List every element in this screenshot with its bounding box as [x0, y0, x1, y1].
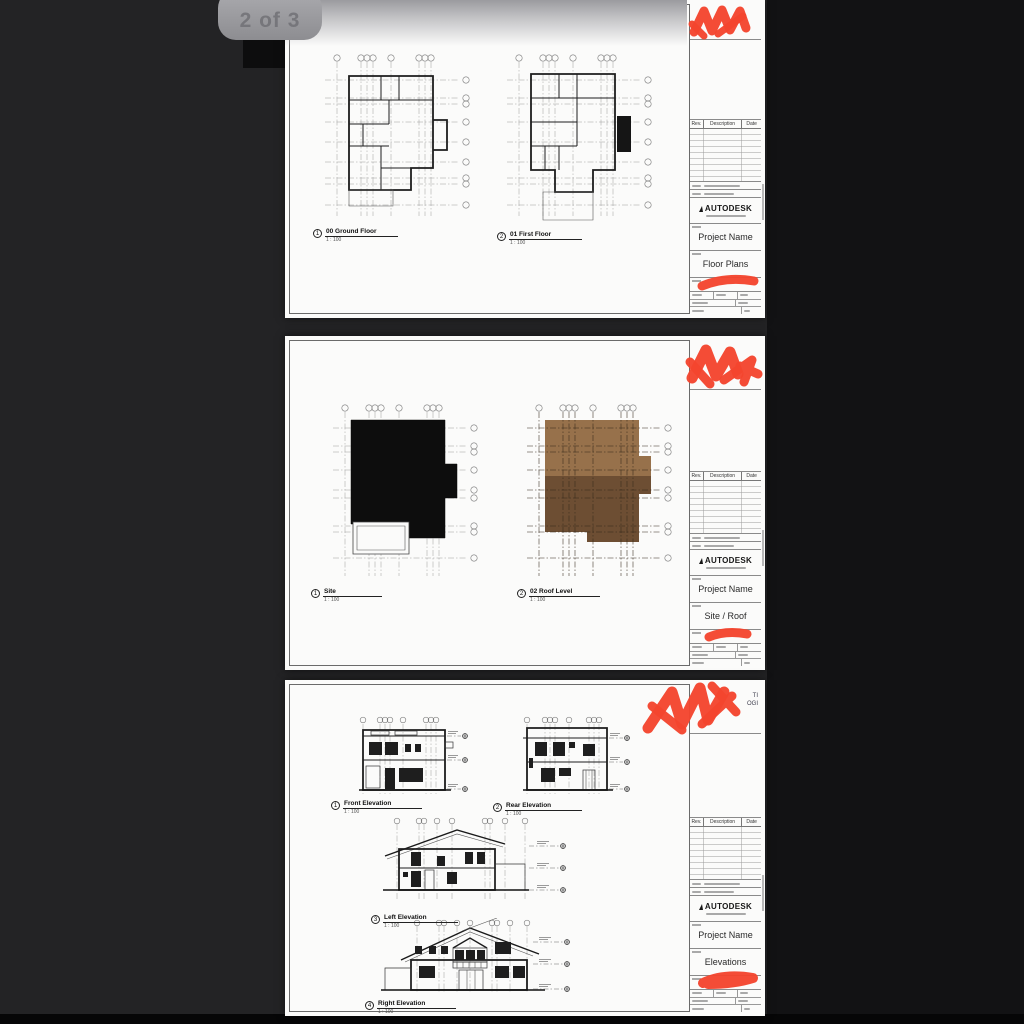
title-block: TI OGI Rev. Description Date — [689, 684, 761, 1012]
consultant-row — [690, 542, 761, 550]
red-scribble-icon — [682, 338, 766, 392]
revision-table: Rev. Description Date — [690, 818, 761, 880]
drawing-label: 1 Front Elevation 1 : 100 — [331, 800, 422, 815]
roof-line — [385, 830, 505, 856]
author-box — [690, 630, 761, 644]
plot-stamp — [762, 875, 764, 911]
autodesk-brand-box: AUTODESK — [690, 550, 761, 576]
rev-col: Rev. — [690, 472, 704, 480]
drawing-number-badge: 3 — [371, 915, 380, 924]
blank-box — [690, 390, 761, 472]
title-block: Rev. Description Date AUTODESK Project N… — [689, 4, 761, 314]
date-col: Date — [742, 120, 761, 128]
author-box — [690, 278, 761, 292]
drawing-scale: 1 : 100 — [343, 809, 422, 815]
autodesk-brand-box: AUTODESK — [690, 896, 761, 922]
drawing-scale: 1 : 100 — [377, 1009, 456, 1015]
drawing-title: Left Elevation — [383, 914, 458, 923]
left-elevation-drawing — [377, 816, 582, 911]
autodesk-brand-box: AUTODESK — [690, 198, 761, 224]
date-col: Date — [742, 472, 761, 480]
title-block: Rev. Description Date AUTODESK Project N… — [689, 340, 761, 666]
revision-header: Rev. Description Date — [690, 120, 761, 129]
site-plan-drawing — [323, 400, 483, 585]
photo-top-shade — [285, 0, 687, 46]
description-col: Description — [704, 818, 742, 826]
project-name-box: Project Name — [690, 224, 761, 251]
brand-tagline-bar — [706, 567, 746, 569]
revision-header: Rev. Description Date — [690, 818, 761, 827]
autodesk-wordmark: AUTODESK — [705, 556, 752, 565]
project-name: Project Name — [690, 576, 761, 602]
project-name: Project Name — [690, 922, 761, 948]
autodesk-logo-icon — [699, 206, 703, 212]
logo-box: TI OGI — [690, 684, 761, 734]
drawing-label: 1 Site 1 : 100 — [311, 588, 382, 603]
rev-col: Rev. — [690, 818, 704, 826]
project-name-box: Project Name — [690, 922, 761, 949]
project-name: Project Name — [690, 224, 761, 250]
field-label-bar — [692, 632, 701, 634]
grid-bubbles — [394, 818, 528, 824]
section-marker — [617, 116, 631, 152]
title-block-fields — [690, 990, 761, 1012]
drawing-label: 2 02 Roof Level 1 : 100 — [517, 588, 600, 603]
drawing-title: Site — [323, 588, 382, 597]
grid-bubbles — [524, 717, 602, 723]
logo-box — [690, 4, 761, 40]
drawing-scale: 1 : 100 — [529, 597, 600, 603]
drawing-number-badge: 1 — [311, 589, 320, 598]
blank-box — [690, 734, 761, 818]
red-scribble-icon — [696, 968, 760, 990]
consultant-row — [690, 888, 761, 896]
side-volume — [495, 864, 525, 890]
drawing-scale: 1 : 100 — [505, 811, 582, 817]
brand-tagline-bar — [706, 913, 746, 915]
autodesk-wordmark: AUTODESK — [705, 204, 752, 213]
drawing-number-badge: 2 — [517, 589, 526, 598]
sheet-floor-plans[interactable]: 1 00 Ground Floor 1 : 100 2 01 First Flo… — [285, 0, 765, 318]
autodesk-wordmark: AUTODESK — [705, 902, 752, 911]
first-floor-plan-drawing — [497, 50, 657, 225]
drawing-number-badge: 1 — [313, 229, 322, 238]
plot-stamp — [762, 530, 764, 566]
consultant-row — [690, 534, 761, 542]
consultant-row — [690, 880, 761, 888]
grid-bubbles — [360, 717, 439, 723]
project-name-box: Project Name — [690, 576, 761, 603]
drawing-number-badge: 4 — [365, 1001, 374, 1010]
drawing-scale: 1 : 100 — [325, 237, 398, 243]
roof-plan-drawing — [517, 400, 677, 585]
lower-roof-outline — [543, 192, 593, 220]
revision-rows — [690, 481, 761, 533]
drawing-scale: 1 : 100 — [509, 240, 582, 246]
sheet-site-roof[interactable]: 1 Site 1 : 100 2 02 Roof Level 1 : 1 — [285, 336, 765, 670]
exterior-walls — [349, 76, 447, 190]
title-block-fields — [690, 644, 761, 666]
revision-header: Rev. Description Date — [690, 472, 761, 481]
drawing-title: Front Elevation — [343, 800, 422, 809]
revision-table: Rev. Description Date — [690, 472, 761, 534]
photo-viewer: 1 00 Ground Floor 1 : 100 2 01 First Flo… — [0, 0, 1024, 1024]
blank-box — [690, 40, 761, 120]
drawing-scale: 1 : 100 — [383, 923, 458, 929]
consultant-row — [690, 190, 761, 198]
sheet-elevations[interactable]: 1 Front Elevation 1 : 100 — [285, 680, 765, 1016]
photo-dark-notch — [243, 38, 287, 68]
porch-outline — [349, 190, 393, 206]
brand-tagline-bar — [706, 215, 746, 217]
background-right — [767, 0, 1024, 1024]
author-box — [690, 976, 761, 990]
ground-floor-plan-drawing — [315, 50, 475, 225]
drawing-title: Right Elevation — [377, 1000, 456, 1009]
red-scribble-icon — [702, 626, 754, 644]
revision-rows — [690, 129, 761, 181]
rev-col: Rev. — [690, 120, 704, 128]
upper-roof — [545, 420, 639, 476]
red-scribble-icon — [696, 272, 760, 292]
drawing-number-badge: 2 — [497, 232, 506, 241]
date-col: Date — [742, 818, 761, 826]
lower-roof — [545, 476, 639, 532]
grid-lines — [325, 62, 459, 216]
red-scribble-icon — [688, 4, 758, 40]
autodesk-logo-icon — [699, 558, 703, 564]
porch-outline — [353, 522, 409, 554]
garage-volume — [385, 968, 411, 990]
title-block-fields — [690, 292, 761, 314]
drawing-title: Rear Elevation — [505, 802, 582, 811]
plot-stamp — [762, 184, 764, 220]
building-mass — [351, 420, 457, 538]
drawing-title: 00 Ground Floor — [325, 228, 398, 237]
grid-lines — [527, 724, 599, 794]
drawing-number-badge: 2 — [493, 803, 502, 812]
description-col: Description — [704, 120, 742, 128]
drawing-scale: 1 : 100 — [323, 597, 382, 603]
drawing-label: 2 01 First Floor 1 : 100 — [497, 231, 582, 246]
autodesk-logo-icon — [699, 904, 703, 910]
description-col: Description — [704, 472, 742, 480]
drawing-number-badge: 1 — [331, 801, 340, 810]
grid-bubbles — [334, 55, 469, 208]
grid-lines — [363, 724, 436, 794]
red-scribble-icon — [642, 678, 760, 738]
drawing-label: 4 Right Elevation 1 : 100 — [365, 1000, 456, 1015]
drawing-title: 02 Roof Level — [529, 588, 600, 597]
page-indicator: 2 of 3 — [218, 0, 322, 40]
revision-table: Rev. Description Date — [690, 120, 761, 182]
page-indicator-label: 2 of 3 — [240, 9, 301, 33]
drawing-label: 2 Rear Elevation 1 : 100 — [493, 802, 582, 817]
logo-box — [690, 340, 761, 390]
drawing-label: 3 Left Elevation 1 : 100 — [371, 914, 458, 929]
revision-rows — [690, 827, 761, 879]
consultant-row — [690, 182, 761, 190]
drawing-label: 1 00 Ground Floor 1 : 100 — [313, 228, 398, 243]
front-elevation-drawing — [333, 714, 473, 806]
rear-elevation-drawing — [495, 714, 635, 806]
drawing-title: 01 First Floor — [509, 231, 582, 240]
right-elevation-drawing — [367, 918, 587, 1000]
